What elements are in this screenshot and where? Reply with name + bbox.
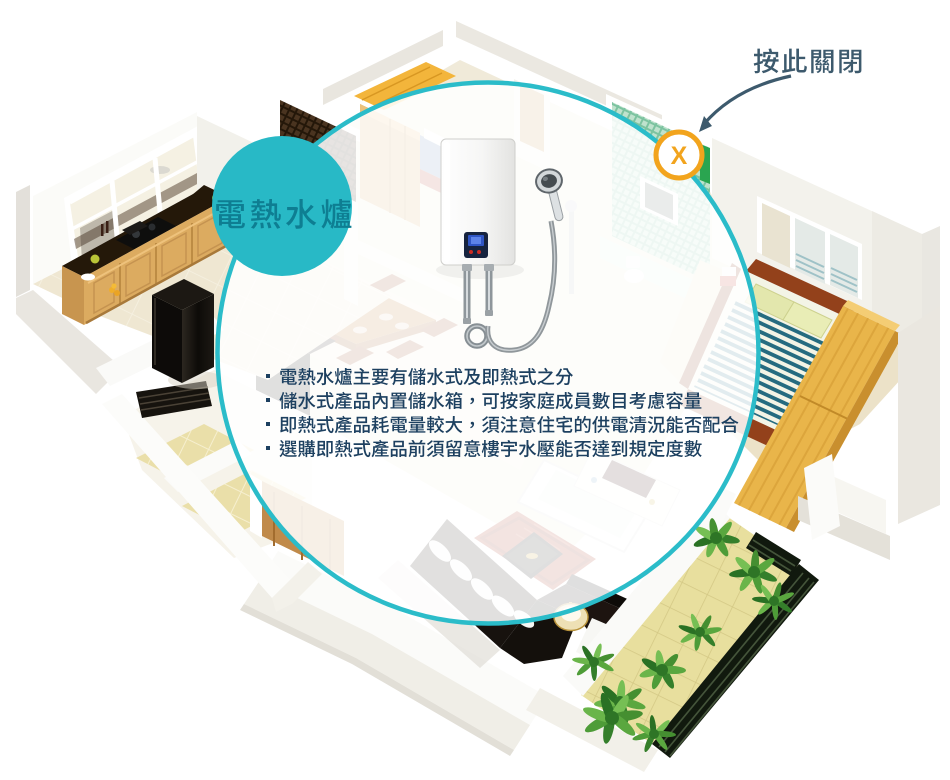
svg-text:X: X	[671, 142, 688, 170]
